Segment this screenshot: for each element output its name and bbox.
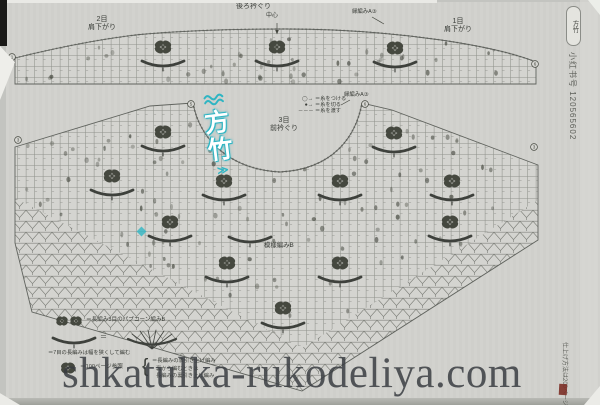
texture-dot xyxy=(305,134,309,138)
front-neck-line2: 前衿ぐり xyxy=(256,125,312,133)
texture-dot xyxy=(532,271,535,277)
texture-dot xyxy=(476,325,479,329)
texture-dot xyxy=(431,136,435,140)
texture-dot xyxy=(353,156,357,161)
svg-text:5: 5 xyxy=(190,102,193,107)
texture-dot xyxy=(425,178,429,184)
texture-dot xyxy=(320,226,324,232)
texture-dot xyxy=(339,126,342,130)
texture-dot xyxy=(222,71,225,77)
texture-dot xyxy=(178,214,180,219)
row-marker: 6 xyxy=(362,101,369,108)
texture-dot xyxy=(181,160,184,164)
texture-dot xyxy=(71,147,75,151)
texture-dot xyxy=(107,139,111,143)
texture-dot xyxy=(496,290,499,294)
texture-dot xyxy=(265,162,269,166)
texture-dot xyxy=(450,308,453,314)
texture-dot xyxy=(120,232,123,238)
texture-dot xyxy=(39,202,42,208)
texture-dot xyxy=(105,111,108,115)
texture-dot xyxy=(105,107,108,113)
texture-dot xyxy=(271,161,274,165)
texture-dot xyxy=(490,281,492,285)
texture-dot xyxy=(337,79,341,85)
texture-dot xyxy=(293,134,297,138)
texture-dot xyxy=(96,162,100,167)
texture-dot xyxy=(293,66,296,71)
texture-dot xyxy=(288,313,291,318)
texture-dot xyxy=(273,278,277,282)
texture-dot xyxy=(64,151,68,156)
texture-dot xyxy=(141,189,144,194)
front-neck-line1: 3目 xyxy=(256,117,312,125)
texture-dot xyxy=(390,187,393,193)
texture-dot xyxy=(126,242,129,247)
texture-dot xyxy=(414,239,417,244)
row-marker: 3 xyxy=(15,137,22,144)
side-badge: 方竹 xyxy=(566,6,581,46)
texture-dot xyxy=(98,46,100,50)
texture-dot xyxy=(435,58,438,62)
texture-dot xyxy=(521,142,524,147)
texture-dot xyxy=(521,326,525,330)
texture-dot xyxy=(26,144,29,148)
texture-dot xyxy=(418,326,422,330)
texture-dot xyxy=(50,111,53,116)
texture-dot xyxy=(374,205,377,210)
texture-dot xyxy=(449,195,453,199)
texture-dot xyxy=(275,285,278,289)
texture-dot xyxy=(488,117,492,121)
texture-dot xyxy=(104,54,108,58)
texture-dot xyxy=(202,69,206,74)
texture-dot xyxy=(459,322,461,327)
texture-dot xyxy=(379,58,382,62)
texture-dot xyxy=(376,228,380,232)
texture-dot xyxy=(80,35,84,40)
carry-yarn-icon: －－－ xyxy=(298,109,313,115)
svg-text:6: 6 xyxy=(364,102,367,107)
texture-dot xyxy=(289,73,292,79)
corner-top-left-dark xyxy=(0,0,7,46)
texture-dot xyxy=(501,300,504,304)
texture-dot xyxy=(419,168,423,172)
texture-dot xyxy=(25,187,28,191)
texture-dot xyxy=(396,202,399,207)
row-marker: 5 xyxy=(188,101,195,108)
texture-dot xyxy=(255,283,259,289)
texture-dot xyxy=(287,37,291,41)
texture-dot xyxy=(238,52,241,58)
texture-dot xyxy=(307,238,311,242)
back-neckline-label: 後ろ衿ぐり xyxy=(236,3,271,11)
scanned-crochet-chart-page: 163563 2目 肩下がり 後ろ衿ぐり 中心 縁編みA③ 1目 肩下がり 縁編… xyxy=(0,0,600,405)
texture-dot xyxy=(166,172,169,177)
row-marker: 6 xyxy=(532,61,539,68)
texture-dot xyxy=(224,78,228,84)
red-stamp-mark xyxy=(559,384,568,395)
crochet-diagram: 163563 xyxy=(0,0,600,405)
texture-dot xyxy=(491,206,494,210)
texture-dot xyxy=(140,205,143,211)
texture-dot xyxy=(60,213,63,217)
bottom-edge-shadow xyxy=(0,398,600,405)
texture-dot xyxy=(492,46,495,52)
texture-dot xyxy=(502,121,505,127)
texture-dot xyxy=(455,314,458,318)
texture-dot xyxy=(66,177,70,183)
legend-carry-yarn: －－－ ＝糸を渡す xyxy=(298,109,346,115)
texture-dot xyxy=(153,160,157,164)
texture-dot xyxy=(488,285,492,289)
texture-dot xyxy=(523,111,526,117)
texture-dot xyxy=(364,159,368,164)
texture-dot xyxy=(98,158,101,162)
texture-dot xyxy=(486,113,489,118)
texture-dot xyxy=(196,106,200,111)
shoulder-slope-left-label: 2目 肩下がり xyxy=(88,16,116,32)
shoulder-right-line2: 肩下がり xyxy=(444,26,472,34)
texture-dot xyxy=(302,72,306,77)
texture-dot xyxy=(48,76,52,80)
texture-dot xyxy=(25,77,28,81)
texture-dot xyxy=(396,215,400,220)
texture-dot xyxy=(291,58,294,62)
texture-dot xyxy=(489,168,493,173)
texture-dot xyxy=(159,156,163,161)
edging-a-mid-label: 縁編みA③ xyxy=(344,92,369,98)
wave-icon xyxy=(203,92,226,107)
texture-dot xyxy=(267,60,270,64)
svg-text:3: 3 xyxy=(533,145,536,150)
texture-dot xyxy=(380,53,384,58)
texture-dot xyxy=(170,204,173,210)
texture-dot xyxy=(463,210,466,215)
texture-dot xyxy=(282,213,284,217)
texture-dot xyxy=(164,229,168,234)
texture-dot xyxy=(525,303,528,308)
texture-dot xyxy=(46,198,50,202)
shoulder-left-line2: 肩下がり xyxy=(88,24,116,32)
texture-dot xyxy=(482,286,485,290)
carry-yarn-text: ＝糸を渡す xyxy=(315,109,341,115)
shoulder-right-line1: 1目 xyxy=(444,18,472,26)
texture-dot xyxy=(152,240,155,246)
texture-dot xyxy=(446,134,450,140)
brand-char-2: 竹 xyxy=(206,135,234,165)
texture-dot xyxy=(274,107,278,111)
texture-dot xyxy=(519,295,522,299)
texture-dot xyxy=(247,156,251,162)
texture-dot xyxy=(312,217,316,221)
texture-dot xyxy=(275,149,278,153)
yarn-legend: ◯→ ＝糸をつける ●→ ＝糸を切る －－－ ＝糸を渡す xyxy=(298,97,346,115)
texture-dot xyxy=(337,60,340,66)
popcorn-separator: ・ xyxy=(70,318,76,324)
texture-dot xyxy=(426,70,430,76)
shoulder-left-line1: 2目 xyxy=(88,16,116,24)
texture-dot xyxy=(346,309,349,314)
texture-dot xyxy=(405,203,409,208)
texture-dot xyxy=(501,323,505,327)
texture-dot xyxy=(172,264,175,269)
side-id-text: 小红书号 120565602 xyxy=(567,52,578,140)
texture-dot xyxy=(163,257,166,261)
top-edge-highlight xyxy=(7,0,437,3)
texture-dot xyxy=(412,134,415,140)
texture-dot xyxy=(153,198,156,204)
texture-dot xyxy=(166,76,170,82)
texture-dot xyxy=(341,247,345,251)
texture-dot xyxy=(149,264,152,268)
texture-dot xyxy=(487,51,490,55)
texture-dot xyxy=(487,291,490,297)
texture-dot xyxy=(155,139,158,144)
svg-text:6: 6 xyxy=(534,62,537,67)
texture-dot xyxy=(148,251,151,257)
texture-dot xyxy=(285,222,288,227)
texture-dot xyxy=(402,54,404,60)
texture-dot xyxy=(525,105,529,109)
texture-dot xyxy=(167,263,171,267)
texture-dot xyxy=(272,178,276,183)
site-watermark: shkatulka-rukodeliya.com xyxy=(62,349,522,398)
texture-dot xyxy=(86,56,90,60)
texture-dot xyxy=(481,165,484,171)
texture-dot xyxy=(238,206,242,211)
texture-dot xyxy=(111,50,115,55)
texture-dot xyxy=(256,160,259,165)
texture-dot xyxy=(375,237,379,243)
texture-dot xyxy=(354,73,358,77)
texture-dot xyxy=(129,134,131,138)
texture-dot xyxy=(198,241,201,245)
texture-dot xyxy=(456,138,459,142)
texture-dot xyxy=(459,34,462,39)
texture-dot xyxy=(494,70,498,75)
texture-dot xyxy=(233,63,236,67)
texture-dot xyxy=(423,323,427,328)
shoulder-slope-right-label: 1目 肩下がり xyxy=(444,18,472,34)
texture-dot xyxy=(154,212,158,217)
back-yoke-chart xyxy=(15,29,536,84)
texture-dot xyxy=(50,141,54,146)
texture-dot xyxy=(352,172,356,177)
edging-a-top-label: 縁編みA③ xyxy=(352,9,377,15)
popcorn-legend-text: ＝長編み5目のパプコーン編みB xyxy=(86,317,165,323)
texture-dot xyxy=(258,76,262,81)
texture-dot xyxy=(445,42,448,46)
texture-dot xyxy=(401,255,404,259)
texture-dot xyxy=(406,129,409,134)
texture-dot xyxy=(75,118,78,124)
texture-dot xyxy=(84,157,88,163)
row-marker: 3 xyxy=(531,144,538,151)
texture-dot xyxy=(423,323,426,328)
texture-dot xyxy=(213,213,217,219)
texture-dot xyxy=(39,333,43,338)
texture-dot xyxy=(505,280,508,285)
texture-dot xyxy=(347,61,351,66)
texture-dot xyxy=(248,257,252,261)
texture-dot xyxy=(27,335,31,341)
texture-dot xyxy=(103,146,105,151)
texture-dot xyxy=(188,122,192,128)
texture-dot xyxy=(361,207,364,212)
legend-fan-icon xyxy=(53,338,95,348)
texture-dot xyxy=(348,148,351,152)
texture-dot xyxy=(186,72,190,77)
texture-dot xyxy=(210,65,212,69)
texture-dot xyxy=(291,79,295,84)
texture-dot xyxy=(131,145,135,149)
texture-dot xyxy=(246,217,249,222)
texture-dot xyxy=(229,293,232,298)
pattern-b-label: 模様編みB xyxy=(264,242,294,249)
front-neckline-label: 3目 前衿ぐり xyxy=(256,117,312,133)
center-label: 中心 xyxy=(266,13,278,20)
texture-dot xyxy=(365,49,368,55)
texture-dot xyxy=(459,242,463,246)
texture-dot xyxy=(451,151,455,156)
side-note-text: 仕上げ方法は200ページへ xyxy=(561,342,570,405)
texture-dot xyxy=(398,172,401,177)
svg-text:3: 3 xyxy=(17,138,20,143)
texture-dot xyxy=(380,260,383,265)
fan-equals: ＝ xyxy=(100,334,107,342)
